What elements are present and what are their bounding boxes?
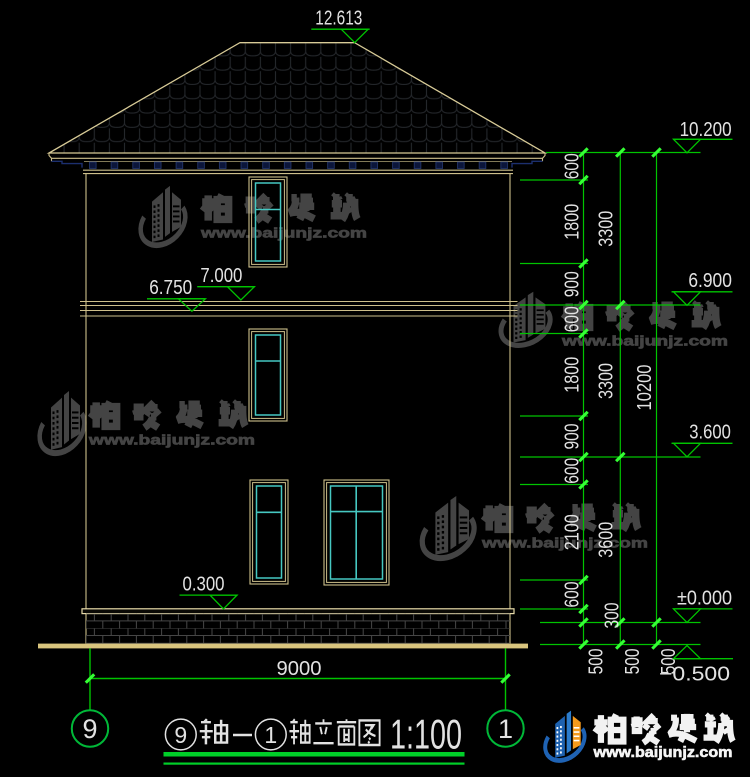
svg-text:3.600: 3.600 (689, 422, 731, 444)
svg-text:600: 600 (562, 458, 584, 484)
svg-text:9000: 9000 (277, 658, 322, 680)
svg-text:−0.500: −0.500 (659, 664, 730, 686)
svg-text:900: 900 (562, 424, 584, 450)
svg-text:www.baijunjz.com: www.baijunjz.com (88, 432, 255, 448)
svg-text:9: 9 (174, 722, 187, 748)
svg-text:3300: 3300 (596, 211, 618, 247)
svg-text:9: 9 (82, 714, 97, 744)
svg-text:1800: 1800 (562, 204, 584, 240)
svg-text:300: 300 (602, 603, 624, 629)
svg-text:1: 1 (498, 714, 513, 744)
svg-text:www.baijunjz.com: www.baijunjz.com (200, 225, 367, 241)
svg-text:12.613: 12.613 (315, 8, 362, 30)
svg-text:3300: 3300 (596, 363, 618, 399)
svg-text:10.200: 10.200 (680, 119, 732, 141)
svg-text:3600: 3600 (596, 522, 618, 558)
svg-text:1: 1 (264, 722, 277, 748)
svg-text:±0.000: ±0.000 (677, 588, 732, 610)
svg-text:7.000: 7.000 (200, 265, 242, 287)
svg-text:500: 500 (622, 648, 644, 674)
svg-text:www.baijunjz.com: www.baijunjz.com (592, 745, 732, 761)
svg-text:10200: 10200 (634, 365, 656, 411)
svg-text:2100: 2100 (562, 514, 584, 550)
svg-text:500: 500 (586, 648, 608, 674)
svg-text:600: 600 (562, 306, 584, 332)
svg-text:900: 900 (562, 271, 584, 297)
svg-text:1800: 1800 (562, 357, 584, 393)
svg-text:600: 600 (562, 153, 584, 179)
svg-text:600: 600 (562, 582, 584, 608)
svg-text:www.baijunjz.com: www.baijunjz.com (561, 333, 728, 349)
svg-text:1:100: 1:100 (390, 711, 462, 758)
svg-text:6.750: 6.750 (149, 277, 192, 299)
svg-text:6.900: 6.900 (688, 270, 732, 292)
svg-text:0.300: 0.300 (183, 574, 225, 596)
